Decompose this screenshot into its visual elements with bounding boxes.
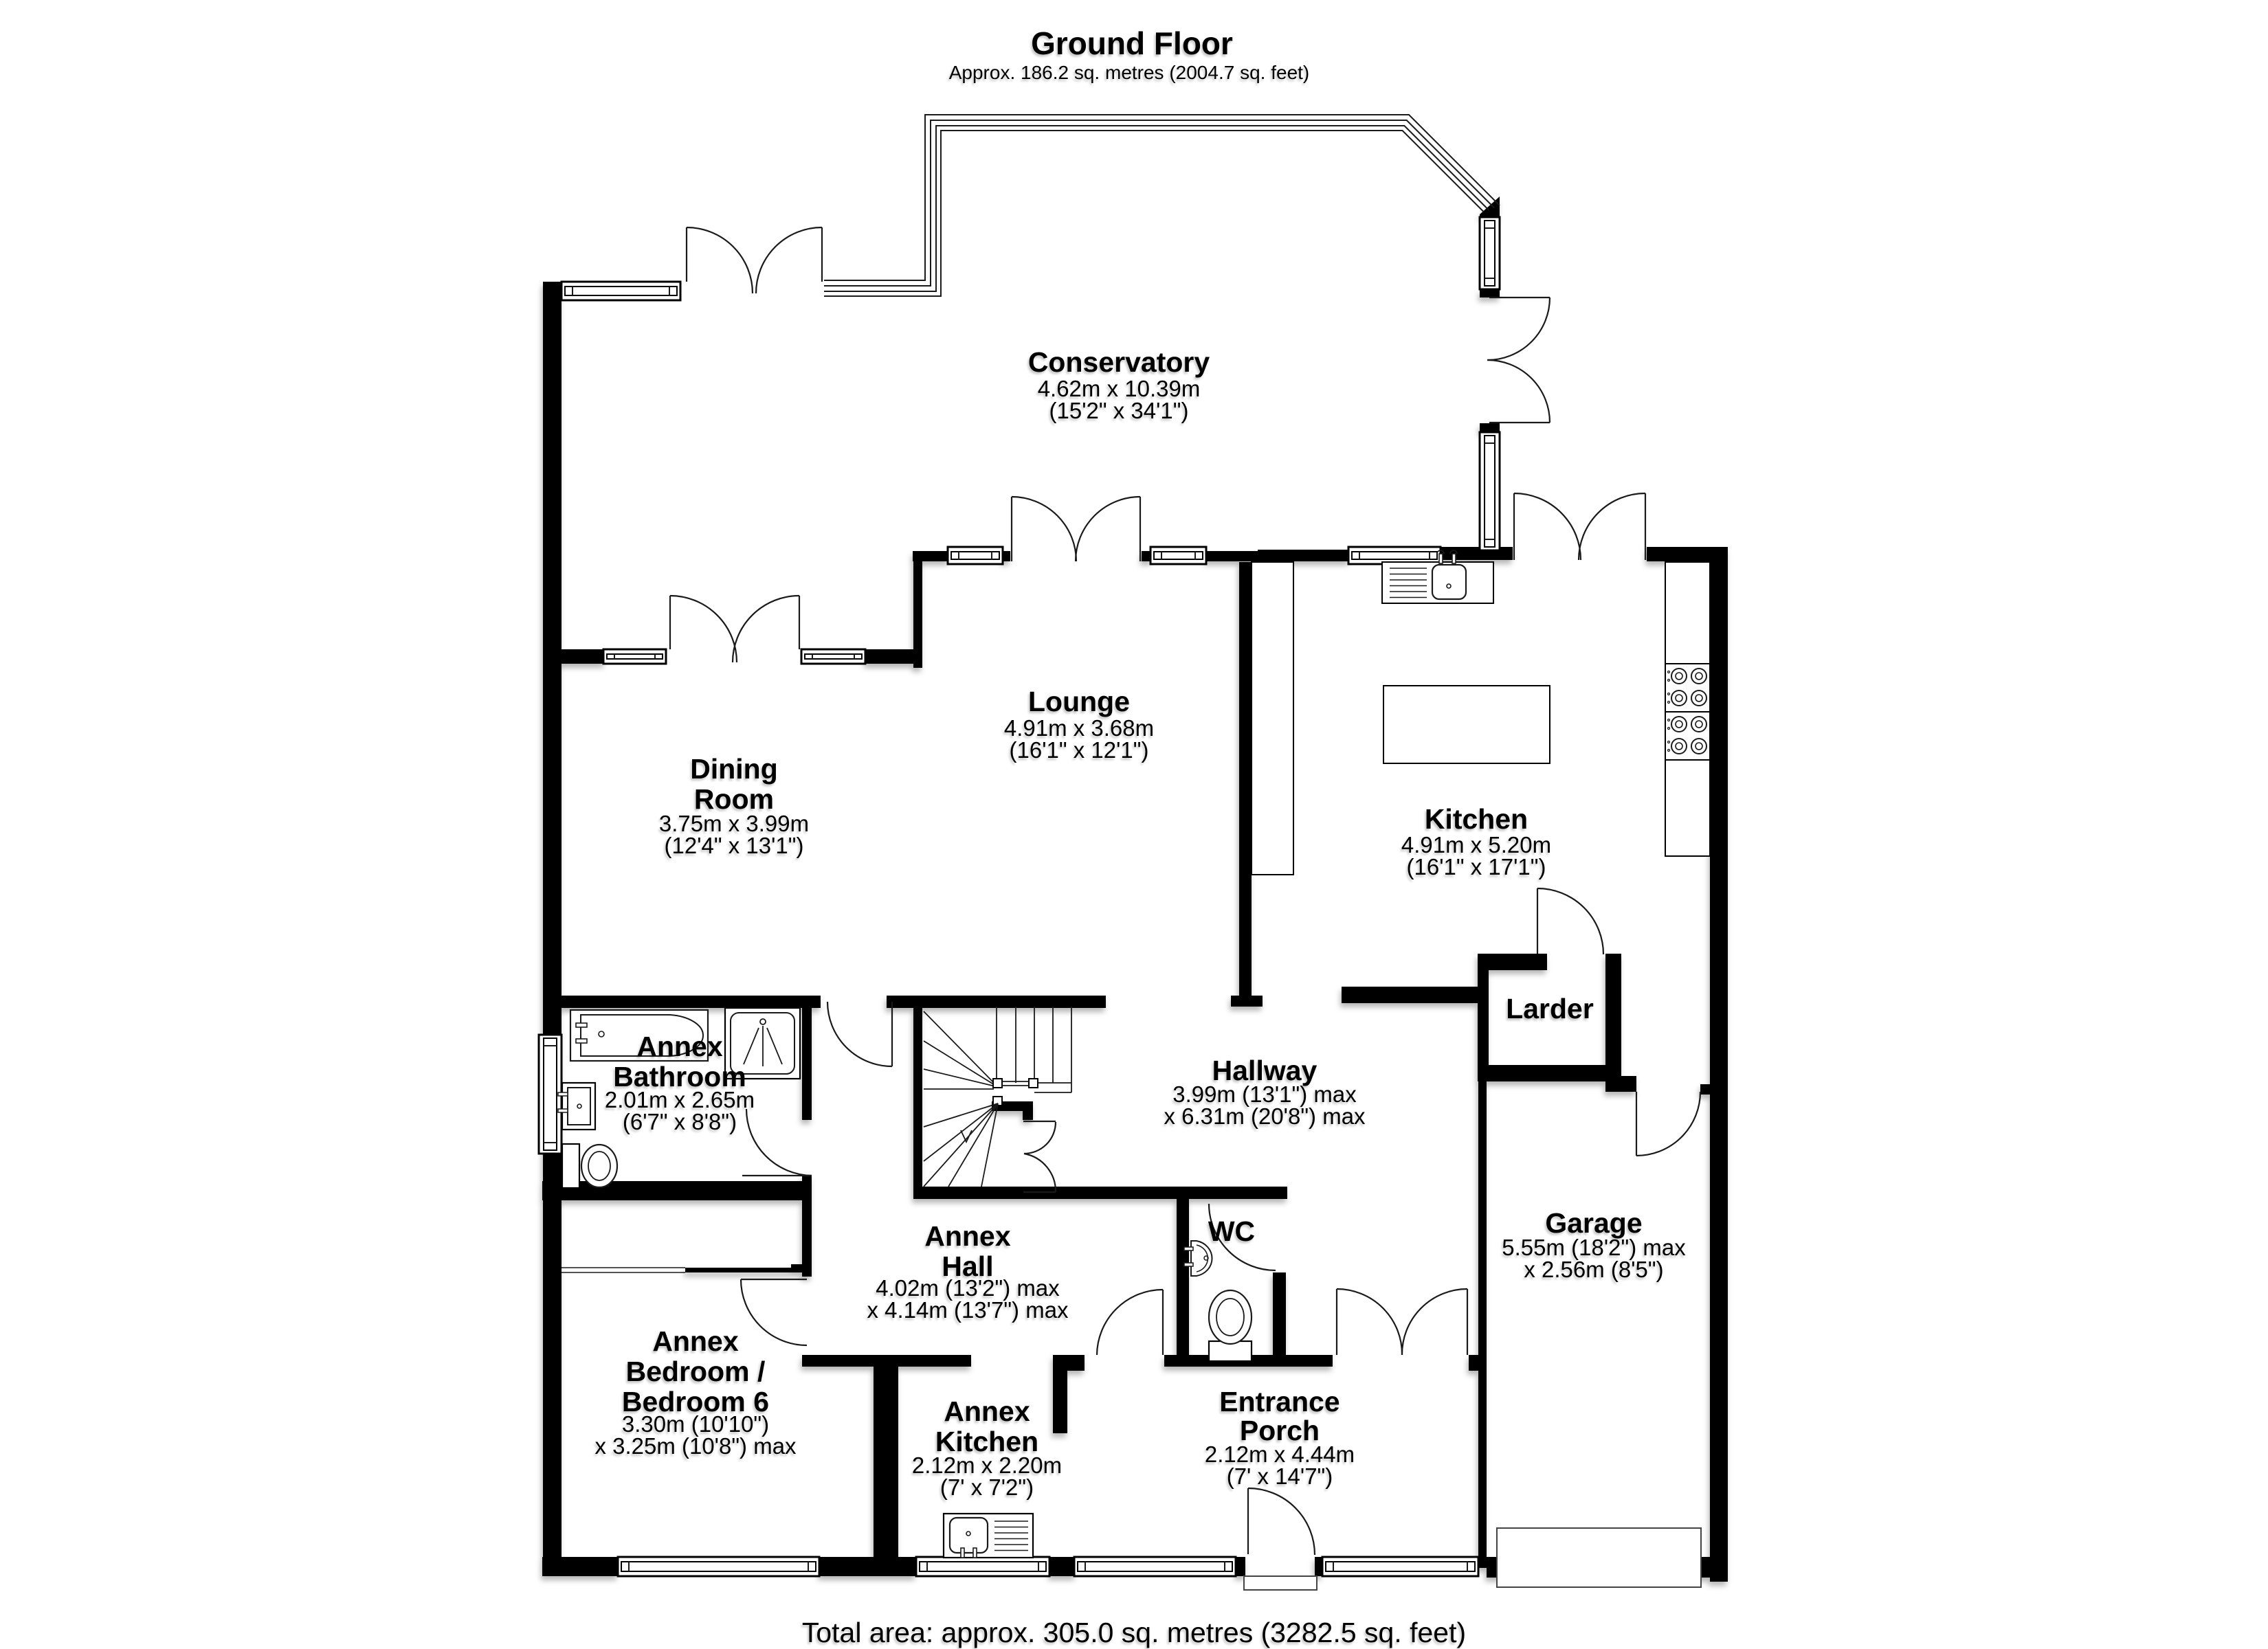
svg-text:Total area: approx. 305.0 sq.: Total area: approx. 305.0 sq. metres (32… bbox=[802, 1617, 1466, 1648]
svg-text:x 6.31m (20'8") max: x 6.31m (20'8") max bbox=[1164, 1103, 1366, 1129]
svg-text:Kitchen: Kitchen bbox=[1425, 803, 1528, 835]
svg-text:Annex: Annex bbox=[652, 1325, 739, 1357]
svg-text:Lounge: Lounge bbox=[1028, 686, 1130, 717]
svg-text:(12'4" x 13'1"): (12'4" x 13'1") bbox=[665, 833, 804, 858]
svg-text:Dining: Dining bbox=[690, 753, 778, 785]
svg-text:(16'1" x 17'1"): (16'1" x 17'1") bbox=[1407, 854, 1546, 879]
svg-text:Conservatory: Conservatory bbox=[1028, 346, 1210, 378]
svg-text:(7' x 7'2"): (7' x 7'2") bbox=[940, 1474, 1034, 1500]
svg-text:Annex: Annex bbox=[944, 1395, 1030, 1427]
svg-text:x 2.56m (8'5"): x 2.56m (8'5") bbox=[1524, 1257, 1663, 1282]
svg-text:Annex: Annex bbox=[636, 1031, 723, 1062]
svg-text:Annex: Annex bbox=[924, 1220, 1011, 1252]
svg-text:x 3.25m (10'8") max: x 3.25m (10'8") max bbox=[594, 1433, 797, 1459]
svg-text:(15'2" x 34'1"): (15'2" x 34'1") bbox=[1049, 398, 1189, 423]
svg-text:(16'1" x 12'1"): (16'1" x 12'1") bbox=[1010, 737, 1149, 763]
svg-text:Ground Floor: Ground Floor bbox=[1031, 25, 1233, 61]
svg-text:Bedroom /: Bedroom / bbox=[626, 1356, 766, 1387]
svg-text:Larder: Larder bbox=[1506, 993, 1594, 1024]
svg-text:WC: WC bbox=[1208, 1215, 1255, 1247]
svg-text:(6'7" x 8'8"): (6'7" x 8'8") bbox=[623, 1109, 737, 1134]
svg-text:Entrance: Entrance bbox=[1219, 1386, 1339, 1417]
svg-text:Approx. 186.2 sq. metres (2004: Approx. 186.2 sq. metres (2004.7 sq. fee… bbox=[949, 62, 1310, 83]
svg-text:(7' x 14'7"): (7' x 14'7") bbox=[1227, 1463, 1333, 1489]
svg-text:x 4.14m (13'7") max: x 4.14m (13'7") max bbox=[867, 1297, 1069, 1323]
